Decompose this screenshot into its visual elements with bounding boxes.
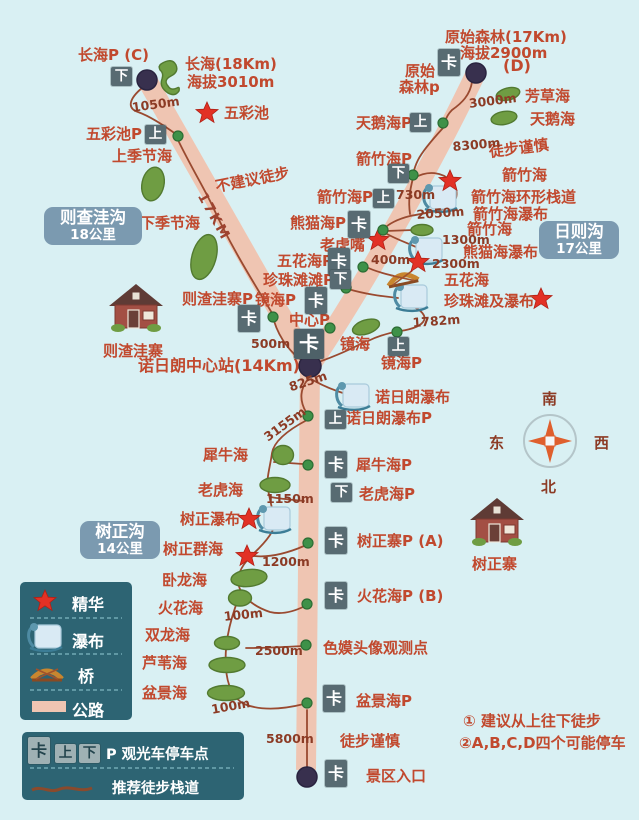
badge-down-zhenzhutan: 下 (330, 270, 351, 289)
label-wolonghai: 卧龙海 (162, 572, 207, 589)
compass-south: 南 (542, 388, 557, 409)
distance-2300m: 2300m (432, 256, 480, 271)
note-parking-options: ②A,B,C,D四个可能停车 (459, 732, 626, 753)
valley-rize-length: 17公里 (546, 242, 612, 258)
label-tianehai: 天鹅海 (530, 111, 575, 128)
highlight-star-wucaichi (196, 102, 218, 122)
lake-wolonghai (230, 568, 268, 589)
distance-400m: 400m (371, 252, 410, 267)
waterfall-icon-nuorilang (337, 382, 370, 410)
legend-badge-ka: 卡 (28, 737, 50, 764)
badge-ka-huohuahai: 卡 (325, 582, 347, 609)
label-jinghai: 镜海 (340, 336, 370, 353)
compass-north: 北 (541, 476, 556, 497)
waterfall-icon-shuzheng (258, 505, 291, 533)
label-wuhuahai: 五花海 (444, 272, 489, 289)
label-shuanglonghai: 双龙海 (145, 627, 190, 644)
distance-2500m: 2500m (255, 643, 303, 658)
label-shuzhengzhai-village: 树正寨 (472, 556, 517, 573)
badge-up-nuorilang: 上 (325, 410, 346, 429)
legend-badge-down: 下 (79, 744, 100, 763)
compass-west: 西 (594, 432, 609, 453)
note-hike-direction: ① 建议从上往下徒步 (463, 710, 601, 731)
label-nuorilang-station: 诺日朗中心站(14Km) (138, 357, 300, 375)
lake-huohuahai (229, 590, 252, 606)
compass-east: 东 (489, 432, 504, 453)
legend-label-parking: P 观光车停车点 (106, 743, 209, 764)
waterfall-icon-zhenzhutan (395, 283, 428, 311)
badge-down-jianzhuhai: 下 (388, 164, 409, 183)
legend-badge-up: 上 (55, 744, 76, 763)
label-shuzheng-qunhai: 树正群海 (163, 541, 223, 558)
legend-label-waterfall: 瀑布 (72, 628, 104, 652)
compass-rose (524, 415, 576, 467)
label-nuorilang-waterfall: 诺日朗瀑布 (375, 389, 450, 406)
label-changhai-distance: 长海(18Km) (185, 56, 277, 73)
legend-label-trail: 推荐徒步栈道 (112, 777, 199, 798)
distance-1200m: 1200m (262, 554, 310, 569)
badge-ka-penjinghai: 卡 (323, 685, 345, 712)
legend-label-road: 公路 (72, 697, 104, 721)
badge-ka-entrance: 卡 (325, 760, 347, 787)
valley-zechawa-name: 则查洼沟 (51, 209, 135, 228)
badge-ka-junction: 卡 (294, 329, 324, 359)
badge-ka-zezhawazhai: 卡 (238, 305, 260, 332)
bridge-icon-map (387, 270, 419, 287)
badge-ka-xiongmaohai: 卡 (348, 211, 370, 238)
label-zhenzhutan-waterfall: 珍珠滩及瀑布 (444, 293, 534, 310)
label-jianzhuhai-highlight: 箭竹海 (502, 167, 547, 184)
valley-rize-name: 日则沟 (546, 223, 612, 242)
label-huohuahai: 火花海 (158, 600, 203, 617)
highlight-star-shuzhengpubu (238, 508, 260, 528)
label-nuorilang-waterfall-parking: 诺日朗瀑布P (346, 410, 432, 427)
badge-ka-jinghai-left: 卡 (305, 287, 327, 314)
valley-zechawa-length: 18公里 (51, 228, 135, 244)
distance-1150m: 1150m (266, 491, 314, 506)
label-tianehai-parking: 天鹅海P (356, 115, 412, 132)
label-wuhuahai-parking: 五花海P (277, 253, 333, 270)
label-semo-viewpoint: 色嫫头像观测点 (323, 640, 428, 657)
distance-1300m: 1300m (442, 232, 490, 247)
label-xiongmaohai-parking: 熊猫海P (290, 215, 346, 232)
label-hike-caution-bottom: 徒步谨慎 (340, 733, 400, 750)
label-jianzhuhai-parking-up: 箭竹海P (317, 189, 373, 206)
badge-up-jianzhuhai: 上 (373, 189, 394, 208)
legend-label-bridge: 桥 (78, 663, 94, 687)
lake-shangjijiehai (139, 165, 168, 203)
label-wucaichi-parking: 五彩池P (86, 126, 142, 143)
distance-500m: 500m (251, 336, 290, 351)
label-jinghai-parking-right: 镜海P (381, 355, 422, 372)
label-xiajijiehai: 下季节海 (140, 215, 200, 232)
village-icon-zezhawazhai (109, 284, 163, 332)
label-scenic-entrance: 景区入口 (366, 768, 426, 785)
label-fangcaohai: 芳草海 (525, 88, 570, 105)
label-wucaichi: 五彩池 (224, 105, 269, 122)
jiuzhaigou-scenic-map: 长海P (C) 长海(18Km) 海拔3010m 五彩池 五彩池P 上季节海 不… (0, 0, 639, 820)
label-laohuhai: 老虎海 (198, 482, 243, 499)
legend-label-highlight: 精华 (72, 591, 104, 615)
label-penjinghai-parking: 盆景海P (356, 693, 412, 710)
label-changhai-parking: 长海P (C) (78, 47, 149, 64)
terminal-entrance (297, 767, 317, 787)
label-shangjijiehai: 上季节海 (112, 148, 172, 165)
lake-xiniuhai (273, 446, 294, 465)
valley-box-rize: 日则沟 17公里 (539, 221, 619, 259)
valley-shuzheng-length: 14公里 (87, 542, 153, 558)
lake-jianzhuhai (411, 225, 433, 236)
badge-ka-shuzhengzhai: 卡 (325, 527, 347, 554)
valley-shuzheng-name: 树正沟 (87, 523, 153, 542)
highlight-star-shuzhengqunhai (236, 545, 258, 565)
valley-box-zechawa: 则查洼沟 18公里 (44, 207, 142, 245)
label-luweihai: 芦苇海 (142, 655, 187, 672)
terminal-yuanshisenlin (466, 63, 486, 83)
village-icon-shuzhengzhai (470, 498, 524, 546)
distance-5800m: 5800m (266, 731, 314, 746)
badge-ka-xiniuhai: 卡 (325, 451, 347, 478)
label-stop-d: (D) (503, 57, 531, 75)
lake-shuanglonghai (215, 637, 240, 650)
label-xiniuhai: 犀牛海 (203, 447, 248, 464)
badge-up-jinghai: 上 (388, 337, 409, 356)
badge-ka-yuanshisenlin: 卡 (438, 49, 460, 76)
label-huohuahai-parking: 火花海P (B) (357, 588, 443, 605)
badge-down-changhai: 下 (111, 67, 132, 86)
lake-tianehai (490, 109, 518, 126)
label-jinghai-parking-left: 镜海P (255, 292, 296, 309)
label-xiniuhai-parking: 犀牛海P (356, 457, 412, 474)
terminal-changhai (137, 70, 157, 90)
label-jianzhuhai-boardwalk: 箭竹海环形栈道 (471, 189, 576, 206)
badge-down-laohuhai: 下 (331, 483, 352, 502)
label-zhongxin-parking: 中心P (289, 312, 330, 329)
label-shuzhengzhai-parking: 树正寨P (A) (357, 533, 444, 550)
badge-up-wucaichi: 上 (145, 125, 166, 144)
legend-road-swatch (32, 701, 66, 712)
label-penjinghai: 盆景海 (142, 685, 187, 702)
lake-luweihai (209, 658, 245, 673)
label-shuzheng-waterfall: 树正瀑布 (180, 511, 240, 528)
badge-up-tianehai: 上 (410, 113, 431, 132)
label-laohuhai-parking: 老虎海P (359, 486, 415, 503)
label-yuanshisenlin-parking-2: 森林p (399, 79, 440, 96)
label-changhai-altitude: 海拔3010m (187, 74, 274, 91)
distance-730m: 730m (396, 187, 435, 202)
valley-box-shuzheng: 树正沟 14公里 (80, 521, 160, 559)
